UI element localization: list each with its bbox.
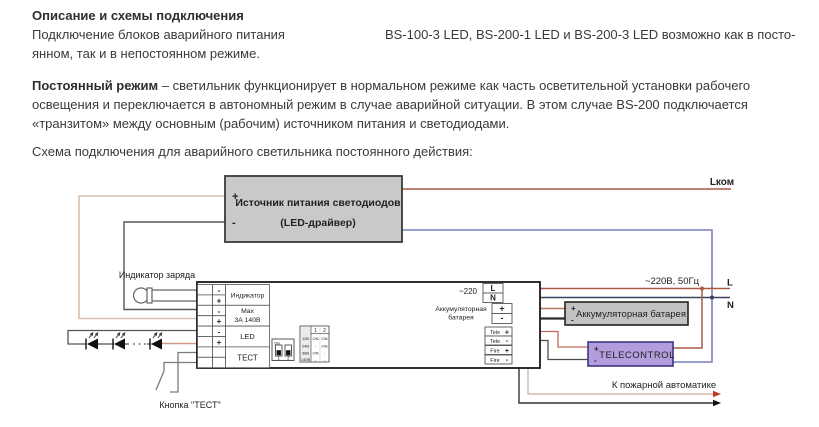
lkom-label: Lком <box>710 177 734 188</box>
unit-battery-label-1: Аккумуляторная <box>435 306 487 313</box>
sign-minus: - <box>218 328 221 337</box>
terminal-l-letter: L <box>491 284 496 293</box>
terminal-n-letter: N <box>490 294 496 303</box>
mains-voltage-label: ~220В, 50Гц <box>645 276 700 287</box>
dip-row-val: ON <box>313 336 319 341</box>
dip-row-label: 140В <box>301 357 311 362</box>
led-driver-box: + - Источник питания светодиодов (LED-др… <box>225 176 402 242</box>
fire-plus-arrowhead <box>713 391 721 397</box>
sign-minus: - <box>218 307 221 316</box>
terminal-label-test: ТЕСТ <box>237 354 258 363</box>
terminal-label-max: Max <box>241 308 254 315</box>
wire-led-minus <box>68 331 197 345</box>
terminal-contact <box>198 357 213 367</box>
telecontrol-label: TELECONTROL <box>599 350 675 361</box>
led-diode-icon <box>114 339 125 350</box>
fire-automation-label: К пожарной автоматике <box>612 380 716 391</box>
led-light-arrow <box>89 333 93 339</box>
led-ellipsis-dot <box>133 343 135 345</box>
terminal-label-indicator: Индикатор <box>231 293 265 300</box>
test-button-label: Кнопка "ТЕСТ" <box>159 400 220 410</box>
bs200-unit: - + - + - + Индикатор Max 3А 140В LED ТЕ… <box>197 282 540 368</box>
dip-row-val: ON <box>313 351 319 356</box>
led-driver-rect <box>225 176 402 242</box>
dip-row-label: 24В <box>302 343 309 348</box>
indicator-led-icon <box>134 288 149 303</box>
sign-minus: - <box>218 286 221 295</box>
telecontrol-minus-sign: - <box>594 356 597 365</box>
led-ellipsis-dot <box>144 343 146 345</box>
terminal-label-led: LED <box>240 332 255 341</box>
terminal-label-max-rating: 3А 140В <box>234 317 261 324</box>
tele-plus-text: Tele <box>490 330 500 336</box>
led-light-arrow <box>158 333 162 339</box>
led-ellipsis-dot <box>139 343 141 345</box>
tele-minus-text: Tele <box>490 339 500 345</box>
fire-plus-text: Fire <box>490 348 499 354</box>
n-label: N <box>727 300 734 311</box>
telecontrol-box: + - TELECONTROL <box>588 342 675 366</box>
fire-minus-arrowhead <box>713 400 721 406</box>
charge-indicator-label: Индикатор заряда <box>119 270 195 280</box>
dip-table: 1 2 12В ON ON 24В - ON 36В ON - 140В - - <box>300 326 329 362</box>
led-diode-icon <box>87 339 98 350</box>
terminal-contact <box>198 337 213 347</box>
terminal-contact <box>198 295 213 305</box>
l-label: L <box>727 278 733 289</box>
junction-dot-n <box>710 296 714 300</box>
led-light-arrow <box>116 333 120 339</box>
driver-minus-sign: - <box>232 217 236 229</box>
fire-plus-sign: + <box>505 346 510 355</box>
led-light-arrow <box>153 333 157 339</box>
test-switch-lever <box>156 371 164 390</box>
led-light-arrow <box>94 333 98 339</box>
wire-test-2 <box>164 363 197 372</box>
dip-row-label: 36В <box>302 351 309 356</box>
led-diode-icon <box>151 339 162 350</box>
indicator-led-flange <box>147 288 152 303</box>
terminal-contact <box>198 347 213 357</box>
led-chain <box>86 333 162 350</box>
wiring-diagram: + - Источник питания светодиодов (LED-др… <box>0 0 819 427</box>
unit-left-terminals: - + - + - + Индикатор Max 3А 140В LED ТЕ… <box>198 285 270 368</box>
sign-plus: + <box>217 317 222 326</box>
charge-indicator: Индикатор заряда <box>119 270 195 303</box>
unit-mains-label: ~220 <box>459 287 478 296</box>
fire-minus-text: Fire <box>490 358 499 364</box>
dip-rocker-1-slider <box>277 350 281 355</box>
terminal-contact <box>198 316 213 326</box>
dip-table-h1: 1 <box>314 328 317 334</box>
terminal-sign-cell <box>213 347 226 357</box>
wire-test-1 <box>170 353 197 393</box>
dip-table-h2: 2 <box>323 328 326 334</box>
terminal-contact <box>198 285 213 295</box>
terminal-contact <box>198 326 213 336</box>
external-battery-box: + - Аккумуляторная батарея <box>565 302 688 325</box>
sign-plus: + <box>217 338 222 347</box>
ext-battery-minus-sign: - <box>571 316 574 325</box>
battery-plus-sign: + <box>499 304 504 314</box>
driver-title: Источник питания светодиодов <box>235 197 401 209</box>
terminal-sign-cell <box>213 357 226 367</box>
dip-switch: ON 1 2 <box>272 339 294 361</box>
battery-minus-sign: - <box>501 313 504 323</box>
led-light-arrow <box>121 333 125 339</box>
driver-subtitle: (LED-драйвер) <box>280 217 355 229</box>
sign-plus: + <box>217 297 222 306</box>
dip-row-label: 12В <box>302 336 309 341</box>
dip-row-val: ON <box>322 336 328 341</box>
unit-battery-label-2: батарея <box>448 314 474 322</box>
terminal-contact <box>198 305 213 315</box>
dip-row-val: ON <box>322 343 328 348</box>
ext-battery-label: Аккумуляторная батарея <box>576 309 686 320</box>
dip-rocker-2-slider <box>286 350 290 355</box>
